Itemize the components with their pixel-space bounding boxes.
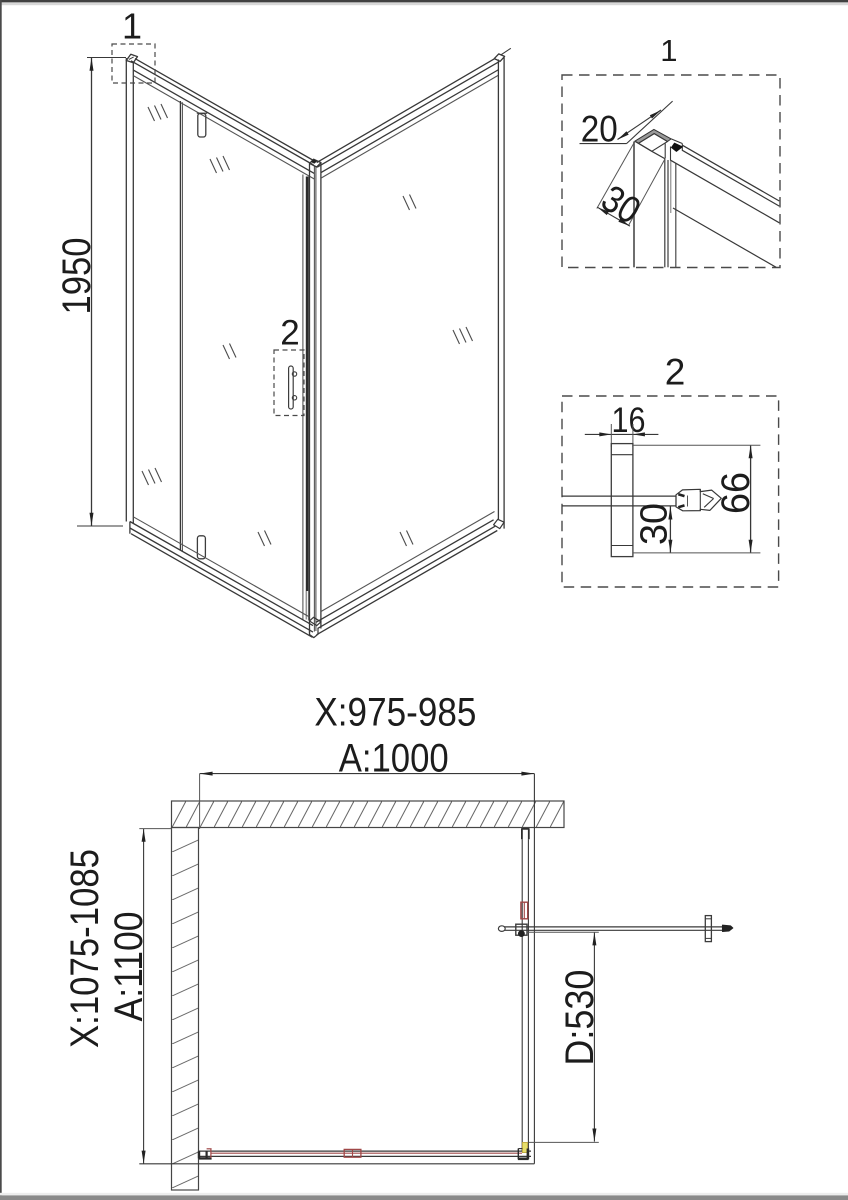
svg-text:A:1100: A:1100	[107, 912, 151, 1022]
svg-text:30: 30	[633, 503, 675, 545]
svg-text:X:1075-1085: X:1075-1085	[63, 849, 107, 1048]
svg-text:2: 2	[280, 314, 299, 353]
svg-text:66: 66	[714, 472, 758, 514]
svg-text:X:975-985: X:975-985	[314, 691, 476, 735]
svg-text:D:530: D:530	[558, 970, 602, 1066]
svg-text:1: 1	[122, 6, 142, 47]
svg-text:1950: 1950	[55, 238, 99, 315]
svg-text:2: 2	[665, 352, 686, 393]
svg-text:1: 1	[660, 33, 677, 68]
